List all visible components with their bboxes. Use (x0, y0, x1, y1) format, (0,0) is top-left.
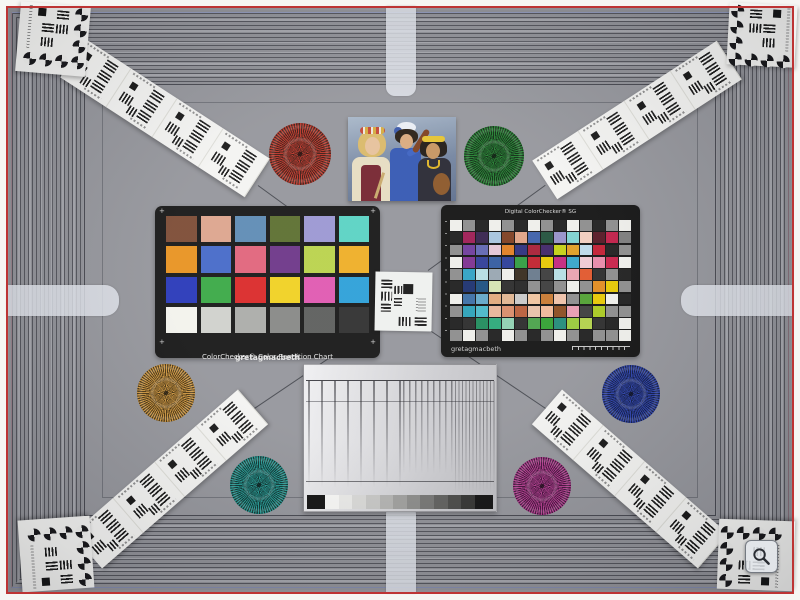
resolution-pattern (175, 111, 185, 121)
sg-patch (593, 318, 605, 329)
sg-patch (554, 257, 566, 268)
quadrant-circle (27, 528, 41, 542)
colorchecker-patch (201, 307, 232, 333)
grayscale-step-wedge (307, 495, 493, 509)
sg-patch (502, 257, 514, 268)
sg-patch (528, 232, 540, 243)
quadrant-circle (776, 55, 790, 69)
sg-patch (567, 294, 579, 305)
colorchecker-patch (339, 307, 370, 333)
sg-patch (463, 281, 475, 292)
sg-patch (528, 245, 540, 256)
sg-patch (554, 306, 566, 317)
sg-row-ticks (445, 221, 447, 341)
sg-patch (593, 257, 605, 268)
sg-patch (593, 330, 605, 341)
sg-patch (502, 269, 514, 280)
sg-patch (541, 232, 553, 243)
red-siemens-star (269, 123, 331, 185)
resolution-pattern (42, 578, 51, 587)
quadrant-circle (729, 36, 743, 50)
sg-patch (463, 245, 475, 256)
sg-ruler-ticks (572, 346, 630, 350)
sg-patch (476, 269, 488, 280)
wedge-step (339, 495, 353, 509)
sg-patch (606, 257, 618, 268)
sg-patch (554, 269, 566, 280)
wedge-step (352, 495, 366, 509)
resolution-pattern (761, 577, 769, 585)
sg-patch (619, 257, 631, 268)
quadrant-circle (719, 574, 732, 587)
resolution-pattern (598, 438, 608, 448)
colorchecker-patch (304, 277, 335, 303)
zoom-cursor-icon[interactable] (745, 540, 778, 573)
sg-patch (541, 294, 553, 305)
quadrant-circle (720, 542, 733, 555)
resolution-pattern (46, 561, 59, 571)
sg-patch (593, 281, 605, 292)
resolution-pattern (211, 151, 227, 166)
teal-siemens-star (230, 456, 288, 514)
magnifier-icon (752, 547, 771, 566)
sg-patch (515, 318, 527, 329)
quadrant-circle (728, 52, 742, 66)
sg-patch (502, 232, 514, 243)
bar-group (415, 317, 427, 326)
quadrant-circle (75, 525, 89, 539)
quadrant-circle (55, 54, 69, 68)
sg-patch (619, 269, 631, 280)
sg-patch (489, 281, 501, 292)
photo-left-face (365, 137, 380, 155)
bar-group (394, 286, 402, 294)
sg-patch (541, 318, 553, 329)
frequency-sweep-panel (303, 364, 497, 512)
sg-patch (606, 281, 618, 292)
sg-patch (580, 232, 592, 243)
quadrant-circle (760, 54, 774, 68)
sg-patch (567, 245, 579, 256)
corner-mark: + (159, 339, 165, 346)
sg-patch (515, 245, 527, 256)
blue-siemens-star (602, 365, 660, 423)
resolution-pattern (550, 170, 566, 185)
registration-bar-bottom (386, 505, 416, 593)
sg-patch (554, 220, 566, 231)
colorchecker-patch (235, 246, 266, 272)
sg-patch (580, 257, 592, 268)
sg-patch (476, 245, 488, 256)
resolution-pattern (738, 574, 750, 583)
sg-patch (489, 257, 501, 268)
sg-patch (528, 220, 540, 231)
colorchecker-patch (270, 277, 301, 303)
sg-patch (567, 330, 579, 341)
resolution-pattern (637, 101, 647, 111)
sg-grid (450, 220, 631, 341)
sg-patch (515, 257, 527, 268)
resolution-pattern (209, 423, 219, 433)
colorchecker-patch (304, 246, 335, 272)
sg-patch (463, 232, 475, 243)
resolution-pattern (750, 9, 762, 19)
colorchecker-patch (166, 277, 197, 303)
sg-patch (554, 245, 566, 256)
resolution-pattern (628, 483, 644, 498)
sg-patch (580, 245, 592, 256)
sg-patch (567, 232, 579, 243)
sg-patch (502, 245, 514, 256)
sg-patch (580, 330, 592, 341)
sg-patch (450, 294, 462, 305)
sg-patch (619, 281, 631, 292)
sg-patch (554, 232, 566, 243)
sg-patch (489, 294, 501, 305)
wedge-step (407, 495, 421, 509)
sg-patch (489, 220, 501, 231)
colorchecker-patch (304, 216, 335, 242)
quadrant-circle (744, 53, 758, 67)
wedge-step (461, 495, 475, 509)
wedge-cap (307, 495, 325, 509)
sg-patch (502, 294, 514, 305)
colorchecker-patch (166, 216, 197, 242)
quadrant-circle (753, 527, 766, 540)
sg-patch (515, 232, 527, 243)
sg-patch (476, 220, 488, 231)
colorchecker-patch (304, 307, 335, 333)
colorchecker-grid (166, 216, 369, 333)
sg-patch (450, 245, 462, 256)
sg-patch (463, 220, 475, 231)
sg-patch (515, 330, 527, 341)
resolution-pattern (42, 23, 55, 33)
sg-patch (541, 269, 553, 280)
quadrant-circle (731, 4, 745, 18)
sg-patch (463, 269, 475, 280)
bar-group (381, 292, 392, 301)
photo-middle-figure (390, 148, 421, 201)
corner-mark: + (370, 339, 376, 346)
resolution-pattern (30, 545, 36, 589)
orange-siemens-star (137, 364, 195, 422)
colorchecker-patch (201, 246, 232, 272)
sg-patch (463, 306, 475, 317)
sg-patch (606, 318, 618, 329)
sg-title: Digital ColorChecker® SG (441, 209, 640, 215)
sg-patch (567, 306, 579, 317)
sg-patch (502, 306, 514, 317)
colorchecker-patch (235, 277, 266, 303)
green-siemens-star (464, 126, 524, 186)
colorchecker-24-chart: + + + + gretagmacbeth ColorChecker® Colo… (155, 206, 380, 358)
panel-hairline (306, 481, 494, 482)
sg-patch (476, 232, 488, 243)
sg-patch (606, 294, 618, 305)
sg-patch (515, 294, 527, 305)
resolution-pattern (773, 10, 781, 18)
quadrant-circle (72, 40, 86, 54)
resolution-pattern (92, 539, 108, 554)
sg-patch (554, 330, 566, 341)
quadrant-circle (23, 52, 37, 66)
quadrant-circle (730, 20, 744, 34)
sg-patch (476, 330, 488, 341)
resolution-pattern (763, 24, 775, 34)
sg-patch (567, 318, 579, 329)
sg-patch (606, 232, 618, 243)
colorchecker-title: ColorChecker® Color Rendition Chart (202, 353, 333, 361)
sg-patch (541, 245, 553, 256)
sg-patch (450, 330, 462, 341)
resolution-pattern (544, 161, 554, 171)
sg-patch (515, 306, 527, 317)
registration-bar-right (681, 285, 793, 316)
sg-patch (619, 245, 631, 256)
resolution-pattern (165, 121, 181, 136)
sg-patch (476, 306, 488, 317)
sg-patch (515, 281, 527, 292)
sg-patch (489, 232, 501, 243)
sg-patch (619, 330, 631, 341)
photo-necklace (427, 160, 440, 169)
bar-group (394, 298, 402, 306)
resolution-pattern (762, 38, 774, 48)
sg-patch (619, 294, 631, 305)
sg-patch (567, 281, 579, 292)
sg-patch (463, 330, 475, 341)
sg-patch (541, 257, 553, 268)
resolution-pattern (749, 23, 761, 33)
frequency-sweep-strip-bottom (307, 483, 493, 494)
sg-patch (502, 330, 514, 341)
sg-patch (515, 269, 527, 280)
resolution-pattern (126, 495, 136, 505)
colorchecker-sg-chart: Digital ColorChecker® SG gretagmacbeth (441, 205, 640, 357)
sg-patch (476, 257, 488, 268)
bar-group (381, 304, 391, 312)
resolution-pattern (57, 10, 70, 20)
wedge-step (420, 495, 434, 509)
corner-target-bottom-left (18, 516, 95, 593)
quadrant-circle (75, 8, 89, 22)
resolution-pattern (785, 8, 790, 52)
quadrant-circle (721, 526, 734, 539)
sg-patch (606, 245, 618, 256)
colorchecker-patch (201, 277, 232, 303)
colorchecker-patch (201, 216, 232, 242)
colorchecker-patch (339, 216, 370, 242)
microtext (416, 298, 426, 312)
sg-patch (450, 257, 462, 268)
wedge-step (366, 495, 380, 509)
sg-patch (593, 306, 605, 317)
photo-right-headband (422, 136, 445, 142)
photo-lute-body (433, 173, 450, 195)
sg-patch (593, 245, 605, 256)
resolution-pattern (59, 560, 72, 570)
resolution-pattern (586, 447, 602, 462)
sg-patch (528, 306, 540, 317)
bar-group (399, 317, 411, 326)
resolution-pattern (175, 467, 191, 482)
wedge-step (380, 495, 394, 509)
resolution-pattern (545, 411, 561, 426)
sg-patch (489, 245, 501, 256)
sg-patch (450, 318, 462, 329)
sg-patch (580, 281, 592, 292)
sg-patch (476, 294, 488, 305)
resolution-pattern (596, 140, 612, 155)
quadrant-circle (39, 53, 53, 67)
sg-patch (450, 306, 462, 317)
resolution-pattern (168, 459, 178, 469)
sweep-streaks (455, 381, 496, 493)
sg-patch (450, 269, 462, 280)
center-resolution-target (374, 272, 432, 332)
sg-patch (593, 232, 605, 243)
sg-patch (541, 220, 553, 231)
colorchecker-patch (339, 246, 370, 272)
colorchecker-patch (166, 307, 197, 333)
resolution-pattern (38, 8, 47, 17)
corner-mark: + (159, 208, 165, 215)
resolution-pattern (669, 519, 685, 534)
sg-patch (619, 318, 631, 329)
colorchecker-patch (270, 216, 301, 242)
sweep-streaks (403, 381, 455, 481)
sg-patch (450, 232, 462, 243)
sg-patch (541, 281, 553, 292)
sg-patch (476, 281, 488, 292)
sg-patch (450, 220, 462, 231)
sg-patch (489, 318, 501, 329)
quadrant-circle (78, 573, 92, 587)
sweep-streaks (308, 381, 403, 493)
sg-patch (606, 306, 618, 317)
corner-target-top-left (15, 1, 91, 77)
quadrant-circle (77, 557, 91, 571)
sg-patch (463, 294, 475, 305)
corner-mark: + (370, 208, 376, 215)
bar-group (381, 280, 392, 289)
colorchecker-patch (270, 307, 301, 333)
resolution-pattern (221, 141, 231, 151)
wedge-step (448, 495, 462, 509)
resolution-pattern (642, 110, 658, 125)
sg-patch (593, 294, 605, 305)
colorchecker-patch (270, 246, 301, 272)
sg-patch (580, 220, 592, 231)
resolution-pattern (40, 37, 53, 47)
sg-patch (567, 257, 579, 268)
resolution-pattern (26, 5, 33, 49)
sg-patch (463, 318, 475, 329)
colorchecker-patch (166, 246, 197, 272)
wedge-cap (475, 495, 493, 509)
sg-patch (528, 318, 540, 329)
sg-patch (515, 220, 527, 231)
sg-patch (567, 269, 579, 280)
sg-brand: gretagmacbeth (451, 345, 501, 353)
sg-patch (528, 330, 540, 341)
resolution-square (403, 284, 413, 294)
quadrant-circle (769, 527, 782, 540)
sg-patch (528, 294, 540, 305)
sg-patch (606, 330, 618, 341)
resolution-pattern (591, 131, 601, 141)
sg-patch (580, 269, 592, 280)
sg-patch (554, 281, 566, 292)
registration-bar-top (386, 6, 416, 96)
sg-patch (619, 232, 631, 243)
sg-patch (554, 318, 566, 329)
photo-middle-face (400, 134, 413, 149)
sg-patch (606, 269, 618, 280)
resolution-pattern (56, 24, 69, 34)
portrait-photo (348, 117, 456, 201)
resolution-pattern (681, 511, 691, 521)
wedge-step (325, 495, 339, 509)
sg-patch (619, 220, 631, 231)
sg-patch (528, 269, 540, 280)
test-chart-scene: + + + + gretagmacbeth ColorChecker® Colo… (0, 0, 800, 600)
colorchecker-patch (235, 307, 266, 333)
quadrant-circle (43, 527, 57, 541)
sg-patch (489, 330, 501, 341)
sg-patch (541, 306, 553, 317)
quadrant-circle (719, 558, 732, 571)
sg-patch (489, 269, 501, 280)
colorchecker-patch (339, 277, 370, 303)
sg-patch (502, 318, 514, 329)
resolution-pattern (129, 81, 139, 91)
quadrant-circle (59, 526, 73, 540)
sg-patch (489, 306, 501, 317)
sg-patch (593, 220, 605, 231)
resolution-pattern (683, 71, 693, 81)
sg-patch (606, 220, 618, 231)
sg-patch (502, 281, 514, 292)
sg-patch (502, 220, 514, 231)
sg-patch (619, 306, 631, 317)
resolution-pattern (557, 402, 567, 412)
sg-patch (580, 294, 592, 305)
registration-bar-left (7, 285, 119, 316)
sg-patch (541, 330, 553, 341)
resolution-pattern (118, 91, 134, 106)
sg-patch (554, 294, 566, 305)
magenta-siemens-star (513, 457, 571, 515)
sg-patch (580, 318, 592, 329)
quadrant-circle (737, 526, 750, 539)
frequency-sweep-strip-top (307, 368, 493, 379)
sg-patch (476, 318, 488, 329)
resolution-pattern (60, 574, 73, 584)
sg-patch (450, 281, 462, 292)
resolution-pattern (216, 431, 232, 446)
resolution-pattern (133, 503, 149, 518)
colorchecker-patch (235, 216, 266, 242)
corner-target-top-right (726, 2, 797, 67)
quadrant-circle (76, 541, 90, 555)
resolution-pattern (640, 474, 650, 484)
photo-right-face (426, 143, 440, 159)
resolution-pattern (688, 80, 704, 95)
sg-patch (528, 257, 540, 268)
quadrant-circle (73, 24, 87, 38)
